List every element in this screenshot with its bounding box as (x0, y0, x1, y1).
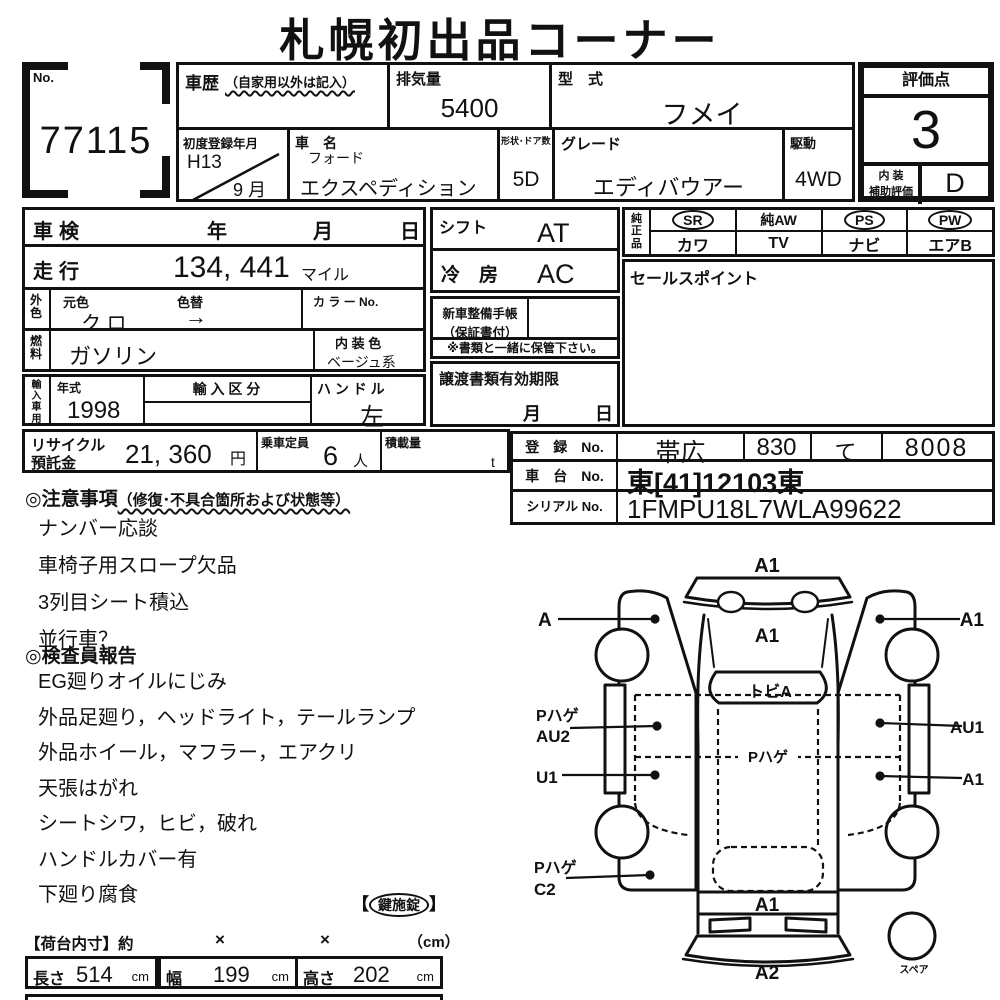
color-change-value: → (185, 304, 207, 330)
inspector-item: 天張はがれ (38, 772, 415, 808)
model-code-label: 型 式 (558, 68, 603, 89)
displacement-label: 排気量 (396, 68, 441, 89)
spare-tire (889, 913, 935, 959)
equip-ps: PS (821, 210, 907, 230)
equip-aw: 純AW (735, 210, 821, 230)
model-code-cell: 型 式 フメイ (549, 62, 855, 130)
reg-no-label: 登 録 No. (513, 434, 618, 459)
shaken-label: 車検 (33, 215, 85, 244)
interior-color-value: ベージュ系 (327, 352, 396, 372)
note-item: ナンバー応談 (38, 511, 237, 548)
diagram-label-left-rear-1: Pハゲ (534, 858, 577, 877)
notes-heading-main: ◎注意事項 (25, 489, 118, 510)
import-class-label: 輸 入 区 分 (143, 377, 310, 403)
first-reg-month: 9 月 (233, 176, 266, 202)
load-unit: t (491, 454, 495, 470)
doors-cell: 形状･ドア数 5D (497, 127, 555, 202)
registration-row: 登 録 No. 帯広 830 て 8008 (510, 431, 995, 462)
inspector-list: EG廻りオイルにじみ 外品足廻り，ヘッドライト，テールランプ 外品ホイール，マフ… (38, 665, 415, 914)
interior-rating-score: D (922, 166, 988, 204)
cargo-height-label: 高さ (303, 965, 335, 989)
drive-cell: 駆動 4WD (782, 127, 855, 202)
diagram-label-windshield: トビA (748, 683, 792, 701)
model-year-label: 年式 (57, 379, 81, 396)
inspector-item: ハンドルカバー有 (38, 843, 415, 879)
cargo-width-value: 199 (213, 962, 250, 988)
cargo-height-value: 202 (353, 962, 390, 988)
ac-label: 冷 房 (441, 260, 498, 287)
interior-rating-label: 内 装補助評価 (864, 166, 922, 204)
cargo-x1: × (215, 930, 225, 950)
circle-mark: PS (844, 210, 885, 230)
key-badge-close: 】 (429, 895, 446, 914)
chassis-no-label: 車 台 No. (513, 462, 618, 489)
ac-value: AC (537, 259, 575, 290)
model-year-value: 1998 (67, 397, 120, 425)
diagram-label-spare: スペア (899, 964, 928, 976)
wheel (886, 806, 938, 858)
grade-value: エディバウアー (555, 170, 782, 202)
exterior-color-vlabel: 外色 (28, 294, 44, 321)
divider (49, 290, 51, 328)
first-reg-year: H13 (187, 152, 222, 174)
doors-label: 形状･ドア数 (501, 134, 551, 147)
diagram-label-left-mid-1: Pハゲ (536, 706, 579, 725)
service-book-labels: 新車整備手帳（保証書付） (433, 299, 529, 337)
maker-value: フォード (308, 148, 364, 168)
equip-sr: SR (649, 210, 735, 230)
page-title: 札幌初出品コーナー (0, 4, 1000, 69)
notes-heading-note: （修復･不具合箇所および状態等） (118, 492, 351, 509)
color-no-label: カ ラ ー No. (313, 293, 378, 310)
left-side-panel (596, 591, 696, 890)
history-cell: 車歴 （自家用以外は記入） (176, 62, 390, 130)
diagram-label-hood: A1 (755, 626, 780, 647)
capacity-unit: 人 (353, 450, 368, 471)
recycle-unit: 円 (230, 445, 246, 469)
load-label: 積載量 (385, 434, 421, 451)
import-vlabel: 輸入車用 (29, 380, 44, 425)
inspector-item: 外品ホイール，マフラー，エアクリ (38, 736, 415, 772)
inspector-item: EG廻りオイルにじみ (38, 665, 415, 701)
cargo-height-unit: cm (417, 969, 434, 984)
recycle-value: 21, 360 (125, 439, 212, 470)
cargo-length-value: 514 (76, 962, 113, 988)
circle-mark: PW (928, 210, 973, 230)
note-item: 3列目シート積込 (38, 585, 237, 622)
rating-score: 3 (864, 98, 988, 162)
circle-mark: SR (672, 210, 713, 230)
import-row: 輸入車用 年式 1998 輸 入 区 分 ハ ン ド ル 左 (22, 374, 426, 426)
diagram-label-right-lower: A1 (962, 770, 984, 789)
first-reg-cell: 初度登録年月 H13 9 月 (176, 127, 290, 202)
divider (301, 290, 303, 328)
wheel (886, 629, 938, 681)
fuel-row: 燃料 ガソリン 内 装 色 ベージュ系 (22, 328, 426, 372)
key-lock-badge: 【鍵施錠】 (352, 890, 446, 917)
equip-tv: TV (735, 230, 821, 256)
shaken-year: 年 (207, 215, 227, 244)
capacity-value: 6 (323, 441, 338, 472)
history-label: 車歴 (185, 69, 219, 94)
diagram-label-tailgate: A1 (755, 895, 780, 916)
cargo-length-label: 長さ (33, 965, 65, 989)
drive-label: 駆動 (790, 133, 816, 152)
shift-label: シフト (439, 214, 487, 238)
right-side-panel (838, 591, 938, 890)
doors-value: 5D (500, 168, 552, 192)
rating-label: 評価点 (864, 68, 988, 98)
car-name-value: エクスペディション (300, 172, 477, 201)
cargo-width-cell: 幅 199 cm (158, 956, 298, 989)
serial-no-label: シリアル No. (513, 492, 618, 522)
fuel-value: ガソリン (69, 339, 157, 371)
grade-label: グレード (561, 133, 621, 154)
shaken-month: 月 (313, 215, 333, 244)
key-badge-oval: 鍵施錠 (369, 893, 429, 917)
diagram-label-rear-bumper: A2 (755, 963, 779, 984)
inspector-heading: ◎検査員報告 (25, 641, 137, 668)
sales-point-box: セールスポイント (622, 259, 995, 427)
equipment-grid: 純正品 SR 純AW PS PW カワ TV ナビ エアB (622, 207, 995, 257)
displacement-cell: 排気量 5400 (387, 62, 552, 130)
notes-list: ナンバー応談 車椅子用スロープ欠品 3列目シート積込 並行車？ (38, 511, 237, 659)
interior-color-label: 内 装 色 (335, 333, 381, 352)
divider (310, 377, 312, 423)
shaken-row: 車検 年 月 日 (22, 207, 426, 247)
cargo-x2: × (320, 930, 330, 950)
serial-row: シリアル No. 1FMPU18L7WLA99622 (510, 489, 995, 525)
note-item: 車椅子用スロープ欠品 (38, 548, 237, 585)
transfer-day: 日 (595, 400, 613, 426)
equip-navi: ナビ (821, 230, 907, 256)
transfer-docs-label: 譲渡書類有効期限 (439, 368, 559, 389)
grade-cell: グレード エディバウアー (552, 127, 785, 202)
diagram-label-roof: Pハゲ (748, 748, 788, 766)
divider (380, 432, 382, 470)
diagram-label-left-rear-2: C2 (534, 880, 556, 899)
lot-number: 77115 (22, 120, 170, 163)
keep-note-row: ※書類と一緒に保管下さい。 (430, 337, 620, 359)
cargo-width-label: 幅 (166, 965, 182, 989)
cargo-extra-box (25, 994, 443, 1000)
cargo-height-cell: 高さ 202 cm (295, 956, 443, 989)
mileage-label: 走行 (33, 255, 85, 284)
divider (49, 377, 51, 423)
ac-cell: 冷 房 AC (430, 248, 620, 293)
history-note: （自家用以外は記入） (225, 72, 355, 91)
cargo-length-unit: cm (132, 969, 149, 984)
capacity-label: 乗車定員 (261, 434, 309, 451)
displacement-value: 5400 (390, 93, 549, 124)
key-badge-open: 【 (352, 895, 369, 914)
fuel-vlabel: 燃料 (28, 335, 44, 362)
diagram-label-right-front: A1 (960, 610, 985, 631)
service-book-cell: 新車整備手帳（保証書付） (430, 296, 620, 340)
equip-kawa: カワ (649, 230, 735, 256)
wheel (596, 806, 648, 858)
shaken-day: 日 (400, 215, 420, 244)
cargo-heading: 【荷台内寸】約 (25, 932, 134, 954)
handle-label: ハ ン ド ル (317, 379, 385, 399)
lot-number-box: No. 77115 (22, 62, 170, 198)
diagram-label-front-bumper: A1 (754, 555, 780, 577)
recycle-row: リサイクル 預託金 21, 360 円 乗車定員 6 人 積載量 t (22, 429, 510, 473)
recycle-label-2: 預託金 (31, 452, 76, 473)
diagram-label-right-mid: AU1 (950, 718, 984, 737)
divider (49, 331, 51, 369)
rating-box: 評価点 3 内 装補助評価 D (858, 62, 994, 202)
reg-class: 830 (743, 434, 810, 462)
divider (256, 432, 258, 470)
transfer-month: 月 (523, 400, 541, 426)
keep-note: ※書類と一緒に保管下さい。 (433, 340, 617, 356)
wheel (596, 629, 648, 681)
mileage-value: 134, 441 (173, 251, 290, 285)
inspector-item: シートシワ，ヒビ，破れ (38, 807, 415, 843)
cargo-width-unit: cm (272, 969, 289, 984)
bracket-right-top (140, 62, 170, 104)
divider (313, 331, 315, 369)
serial-number: 1FMPU18L7WLA99622 (627, 494, 902, 525)
mileage-unit: マイル (301, 261, 349, 285)
shift-value: AT (537, 218, 570, 249)
equip-airb: エアB (906, 230, 992, 256)
chassis-row: 車 台 No. 東[41]12103東 (510, 459, 995, 492)
sales-point-label: セールスポイント (630, 265, 758, 289)
car-name-cell: 車 名 フォード エクスペディション (287, 127, 500, 202)
drive-value: 4WD (785, 168, 852, 192)
notes-heading: ◎注意事項（修復･不具合箇所および状態等） (25, 484, 350, 511)
cargo-length-cell: 長さ 514 cm (25, 956, 158, 989)
vehicle-damage-diagram: A1 A A1 A1 トビA Pハゲ AU2 AU1 Pハゲ U1 A1 Pハゲ… (520, 545, 1000, 1000)
auction-sheet: 札幌初出品コーナー No. 77115 車歴 （自家用以外は記入） 排気量 54… (0, 0, 1000, 1000)
exterior-color-row: 外色 元色 ク ロ 色替 → カ ラ ー No. (22, 287, 426, 331)
diagram-label-left-front: A (538, 610, 552, 631)
handle-value: 左 (360, 397, 384, 432)
cargo-unit: （cm） (408, 931, 460, 952)
shift-cell: シフト AT (430, 207, 620, 251)
diagram-label-left-mid-2: AU2 (536, 727, 570, 746)
lot-number-label: No. (33, 70, 54, 85)
equip-pw: PW (906, 210, 992, 230)
transfer-docs-cell: 譲渡書類有効期限 月 日 (430, 361, 620, 427)
mileage-row: 走行 134, 441 マイル (22, 244, 426, 290)
inspector-item: 外品足廻り，ヘッドライト，テールランプ (38, 701, 415, 737)
equipment-vlabel: 純正品 (629, 213, 644, 250)
diagram-label-left-lower: U1 (536, 768, 558, 787)
